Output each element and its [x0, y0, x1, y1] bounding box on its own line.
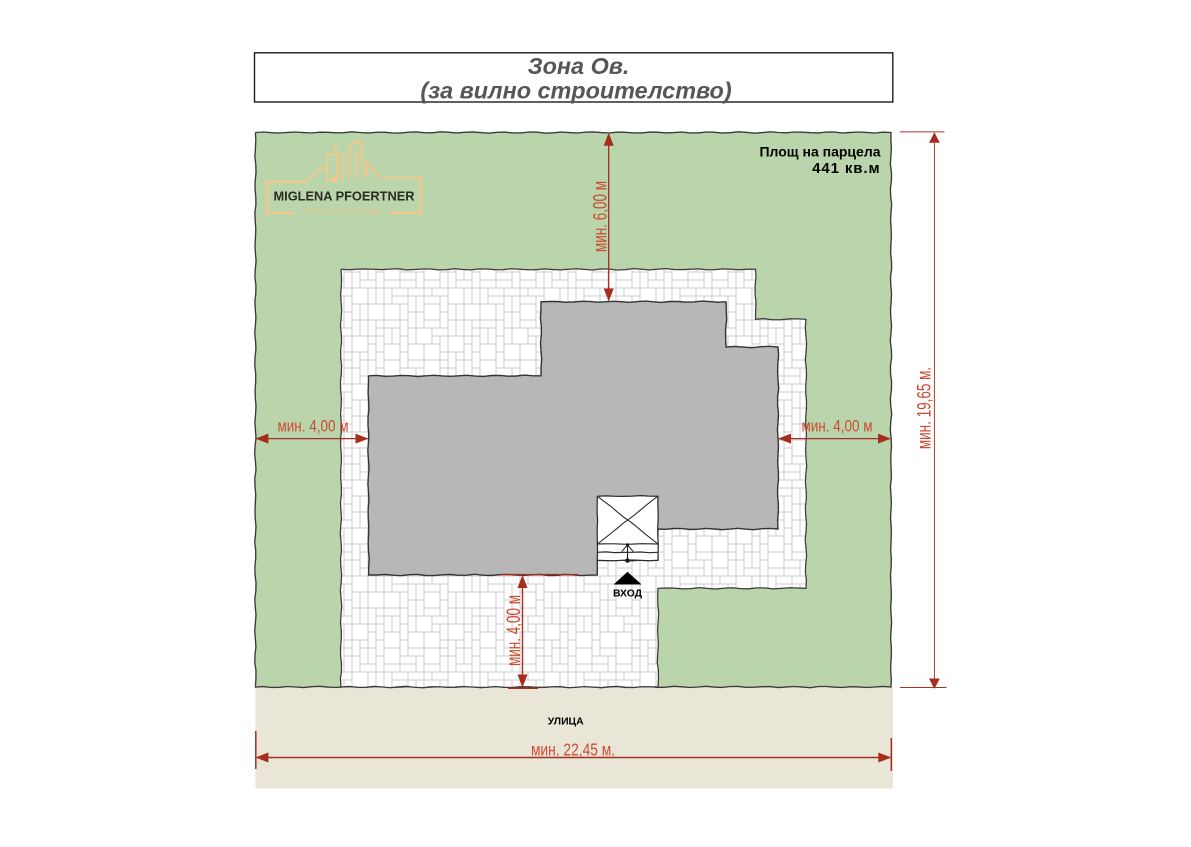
- svg-text:MIGLENA PFOERTNER: MIGLENA PFOERTNER: [273, 189, 414, 204]
- svg-text:мин. 4,00 м: мин. 4,00 м: [277, 418, 348, 435]
- svg-text:УЛИЦА: УЛИЦА: [548, 716, 584, 727]
- svg-text:Площ на парцела: Площ на парцела: [759, 144, 880, 160]
- svg-text:441 кв.м: 441 кв.м: [812, 160, 880, 177]
- svg-text:мин. 6,00 м: мин. 6,00 м: [589, 181, 611, 252]
- svg-text:мин. 22,45 м.: мин. 22,45 м.: [531, 741, 615, 760]
- svg-text:мин. 19,65 м.: мин. 19,65 м.: [913, 367, 935, 449]
- svg-text:Зона Ов.: Зона Ов.: [528, 53, 630, 79]
- svg-text:(за вилно строителство): (за вилно строителство): [420, 78, 731, 104]
- svg-text:architecture and design: architecture and design: [302, 209, 382, 216]
- svg-text:ВХОД: ВХОД: [613, 588, 643, 599]
- svg-text:мин. 4,00 м: мин. 4,00 м: [503, 595, 525, 666]
- svg-text:мин. 4,00 м: мин. 4,00 м: [801, 418, 872, 435]
